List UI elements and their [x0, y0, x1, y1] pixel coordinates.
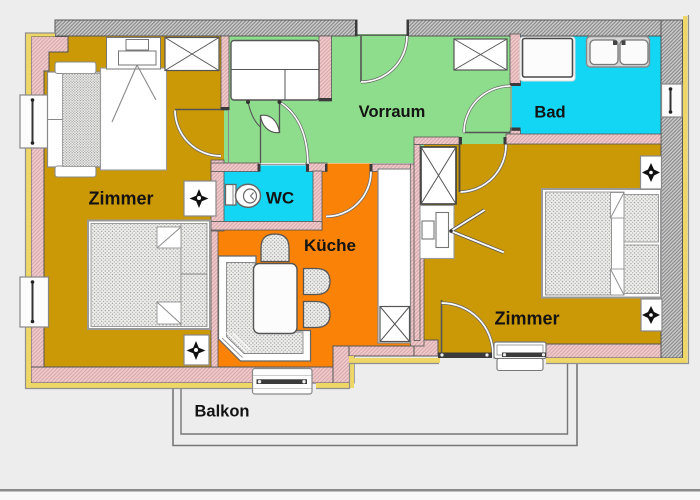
- svg-text:Vorraum: Vorraum: [359, 103, 426, 121]
- svg-text:WC: WC: [266, 189, 294, 208]
- svg-text:Küche: Küche: [304, 236, 356, 255]
- svg-text:Balkon: Balkon: [194, 403, 249, 421]
- svg-text:Zimmer: Zimmer: [88, 189, 153, 209]
- svg-text:Zimmer: Zimmer: [494, 309, 559, 329]
- svg-text:Bad: Bad: [534, 104, 565, 122]
